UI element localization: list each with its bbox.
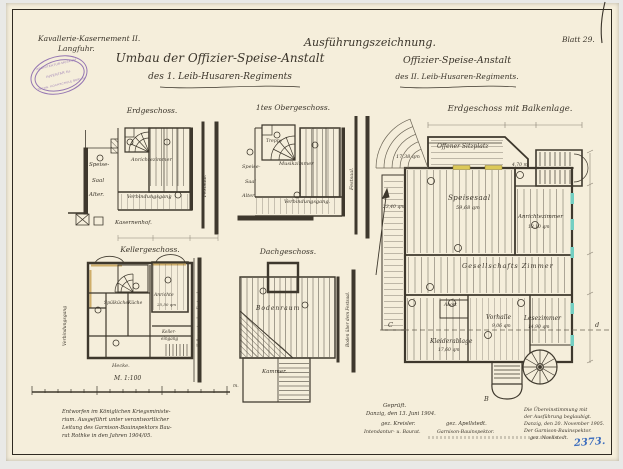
plan-obergeschoss-title: 1tes Obergeschoss.	[243, 104, 343, 112]
kasernement-line1: Kavallerie-Kasernement II.	[38, 35, 140, 43]
spiral-stair	[523, 350, 557, 384]
label-speisesaal: Speise-	[242, 165, 260, 170]
corner-mark	[596, 0, 614, 46]
scale-bar	[30, 384, 236, 398]
label-speisesaal: Speisesaal	[448, 195, 491, 202]
stair-treads	[279, 360, 309, 400]
label-speisesaal: Alter.	[89, 193, 104, 199]
plan-dach-title: Dachgeschoss.	[250, 248, 326, 256]
title-umbau-line2: des 1. Leib-Husaren-Regiments	[110, 73, 330, 82]
label-lesezimmer-qm: 14,90 qm	[528, 326, 549, 331]
plan-keller-title: Kellergeschoss.	[108, 246, 192, 254]
blatt-number: Blatt 29.	[562, 36, 595, 44]
label-kellereingang: Keller-	[162, 330, 176, 334]
plan-haupt-title: Erdgeschoss mit Balkenlage.	[440, 105, 580, 114]
label-kleiderablage: Kleiderablage	[430, 339, 472, 345]
label-kellereingang: eingang	[161, 337, 178, 341]
label-boden-ueber-festsaal: Boden über dem Festsaal.	[346, 292, 350, 347]
title-right-line2: des II. Leib-Husaren-Regiments.	[382, 73, 532, 81]
signature-right: gez. Apellstedt.	[446, 422, 487, 427]
label-anrichte-qm: 13,10 qm	[528, 226, 549, 231]
label-anrichtezimmer: Anrichtezimmer	[518, 215, 563, 221]
label-treppe: Treppe	[266, 140, 282, 145]
label-speisesaal-qm: 59,68 qm	[456, 206, 480, 211]
section-letter-c: C	[388, 322, 393, 329]
drawing-sheet: Kavallerie-Kasernement II. Langfuhr. Umb…	[0, 0, 623, 469]
label-verbindungsgang: Verbindungsgang	[127, 195, 172, 200]
label-vorhalle-qm: 9,06 qm	[492, 325, 511, 330]
label-kammer: Kammer.	[262, 370, 287, 376]
note-geprueft: Geprüft.	[383, 404, 406, 410]
title-right-line1: Offizier-Speise-Anstalt	[382, 56, 532, 66]
note-right-line4: Der Garnison-Bauinspektor.	[524, 430, 592, 435]
label-lesezimmer: Lesezimmer	[524, 316, 561, 322]
microprint-line	[428, 436, 558, 439]
label-treppe-dim: 4,70 m	[512, 164, 528, 169]
beam-hatch	[517, 189, 569, 253]
label-anrichte: Anrichte	[154, 294, 174, 299]
label-musikzimmer: Musikzimmer	[279, 162, 314, 167]
label-hecke: Hecke.	[112, 364, 130, 369]
beam-hatch	[407, 170, 513, 253]
label-keller-unter-festsaal: Keller unter dem Festsaal.	[197, 291, 201, 347]
plan-keller-drawing	[58, 248, 236, 398]
label-verbindungsgang: Verbindungsgang	[64, 306, 69, 346]
note-left-line3: Leitung des Garnison-Bauinspektors Bau-	[62, 426, 172, 431]
label-speisesaal: Alter.	[242, 194, 256, 199]
label-anrichte-qm: 25,50 qm	[157, 303, 176, 307]
label-festsaal: Festsaal.	[350, 168, 355, 190]
cellar-steps	[166, 344, 187, 356]
label-terrasse-qm: 23,40 qm	[383, 206, 404, 211]
beam-hatch	[384, 178, 403, 326]
title-underline-right	[398, 84, 518, 90]
label-kasernenhof: Kasernenhof.	[115, 221, 152, 227]
label-anrichtezimmer: Anrichtezimmer	[131, 158, 172, 163]
signature-left: gez. Kreisler.	[381, 422, 415, 427]
scale-label: M. 1:100	[114, 376, 141, 382]
label-speisesaal: Saal	[245, 180, 256, 185]
wall	[84, 148, 88, 214]
note-left-line2: rium. Ausgeführt unter verantwortlicher	[62, 418, 169, 423]
note-left-line4: rat Rothke in den Jahren 1904/05.	[62, 434, 152, 439]
label-kleiderablage-qm: 17,60 qm	[438, 349, 459, 354]
title-ausfuehrungszeichnung: Ausführungszeichnung.	[290, 37, 450, 48]
dimension-line	[118, 235, 218, 241]
label-gesellschaftszimmer: Gesellschafts Zimmer	[462, 263, 554, 270]
plan-erdgeschoss-title: Erdgeschoss.	[112, 107, 192, 115]
upper-stair	[536, 150, 588, 186]
label-abort: Abort	[444, 304, 457, 309]
note-right-line1: Die Übereinstimmung mit	[524, 409, 587, 414]
porch	[68, 213, 103, 225]
title-underline-left	[158, 84, 302, 90]
label-sitzplatz-qm: 17,38 qm	[396, 155, 420, 160]
label-vorhalle: Vorhalle	[486, 315, 511, 321]
note-right-line2: der Ausführung beglaubigt.	[524, 416, 591, 421]
label-speisesaal: Speise-	[89, 163, 109, 169]
label-kueche: Küche	[128, 302, 142, 307]
note-right-line3: Danzig, den 20. November 1905.	[524, 423, 604, 428]
label-festsaal: Festsaal.	[203, 175, 208, 197]
note-geprueft-date: Danzig, den 13. Juni 1904.	[366, 412, 436, 417]
note-left-line1: Entworfen im Königlichen Kriegsministe-	[62, 410, 170, 415]
section-letter-b: B	[484, 396, 489, 403]
role-left: Intendantur- u. Baurat.	[364, 431, 421, 436]
beam-hatch	[111, 139, 118, 153]
entrance-porch	[492, 362, 522, 399]
arch	[156, 255, 185, 262]
label-verbindungsgang: Verbindungsgang.	[284, 200, 330, 205]
veranda-fan	[376, 119, 428, 168]
title-umbau-line1: Umbau der Offizier-Speise-Anstalt	[110, 52, 330, 64]
spiral-stair	[115, 265, 148, 292]
label-speisesaal: Saal	[92, 179, 104, 185]
label-spuelkueche: Spülküche	[104, 302, 128, 307]
section-letter-d: d	[595, 322, 599, 329]
spiral-stair	[125, 128, 149, 152]
label-bodenraum: Bodenraum	[256, 306, 300, 312]
label-offener-sitzplatz: Offener Sitzplatz	[437, 144, 488, 150]
